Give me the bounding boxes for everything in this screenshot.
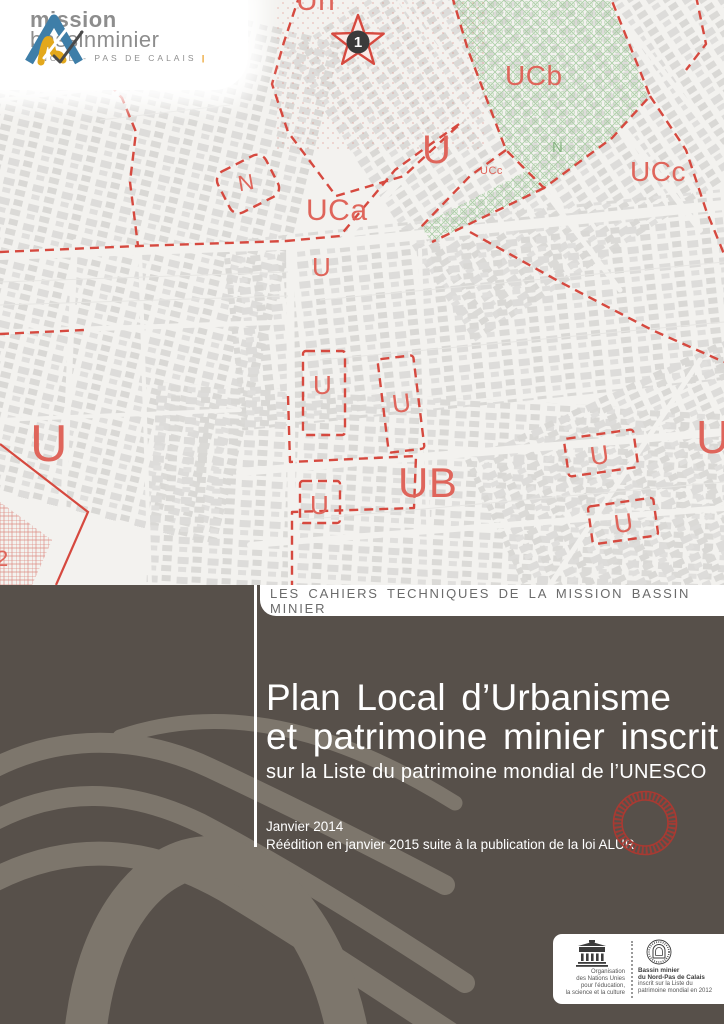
title-line-3: sur la Liste du patrimoine mondial de l’… (266, 760, 718, 784)
title-line-1: Plan Local d’Urbanisme (266, 678, 718, 717)
zone-label-ucb: UCb (505, 62, 563, 90)
edition-info: Janvier 2014 Réédition en janvier 2015 s… (266, 818, 635, 854)
zone-label-2: 2 (0, 548, 9, 570)
watermark-logo-swoosh (0, 585, 480, 1024)
series-title-banner: LES CAHIERS TECHNIQUES DE LA MISSION BAS… (260, 585, 724, 616)
unesco-caption-4: la science et la culture (559, 990, 625, 997)
vertical-rule (254, 585, 257, 847)
unesco-caption-2: des Nations Unies (559, 976, 625, 983)
world-heritage-emblem-icon (646, 939, 672, 965)
zone-label-u-c: U (390, 389, 412, 417)
zone-label-n-green: N (552, 140, 563, 155)
zone-label-uh: Uh (296, 0, 335, 16)
zone-label-u-d: U (310, 492, 329, 518)
logo-plate: mission bassinminier | NORD - PAS DE CAL… (0, 0, 248, 90)
title-line-2: et patrimoine minier inscrit (266, 717, 718, 756)
logo-mark-icon (24, 10, 86, 68)
series-title: LES CAHIERS TECHNIQUES DE LA MISSION BAS… (270, 586, 724, 616)
zone-label-u-f: U (612, 509, 635, 537)
dotted-divider (631, 941, 633, 998)
world-heritage-column: Bassin minier du Nord-Pas de Calais insc… (638, 939, 720, 1000)
zone-label-ub: UB (398, 462, 457, 504)
zone-label-u-a: U (312, 254, 331, 280)
mission-bassin-minier-logo: mission bassinminier | NORD - PAS DE CAL… (24, 10, 207, 63)
edition-date: Janvier 2014 (266, 818, 635, 836)
zoning-map: Uh 1 UCb U N UCc UCc N UCa U U U U U UB … (0, 0, 724, 585)
tagline-pipe-right: | (202, 53, 207, 63)
zone-label-ucc-small: UCc (480, 166, 503, 177)
zone-label-u-upper: U (422, 130, 451, 170)
zone-label-n-red: N (236, 171, 256, 196)
wh-caption-4: patrimoine mondial en 2012 (638, 988, 720, 995)
unesco-caption-1: Organisation (559, 969, 625, 976)
cover-bottom-panel: LES CAHIERS TECHNIQUES DE LA MISSION BAS… (0, 585, 724, 1024)
zone-label-ucc: UCc (630, 158, 686, 186)
star-marker-number: 1 (350, 34, 366, 51)
zone-label-u-big-left: U (30, 418, 68, 470)
unesco-temple-icon (575, 940, 609, 967)
edition-note: Réédition en janvier 2015 suite à la pub… (266, 836, 635, 854)
wh-caption-bold-2: du Nord-Pas de Calais (638, 974, 720, 981)
unesco-column: Organisation des Nations Unies pour l’éd… (559, 939, 625, 1000)
wh-caption-3: inscrit sur la Liste du (638, 981, 720, 988)
zone-label-uca: UCa (306, 196, 368, 226)
red-seal-stamp (610, 787, 680, 857)
unesco-caption-3: pour l’éducation, (559, 983, 625, 990)
zone-label-u-e: U (588, 441, 611, 469)
wh-caption-bold-1: Bassin minier (638, 967, 720, 974)
unesco-footer-box: Organisation des Nations Unies pour l’éd… (553, 934, 724, 1004)
zone-label-u-b: U (313, 372, 332, 398)
zone-label-u-right: U (696, 414, 724, 460)
document-title: Plan Local d’Urbanisme et patrimoine min… (266, 678, 718, 784)
